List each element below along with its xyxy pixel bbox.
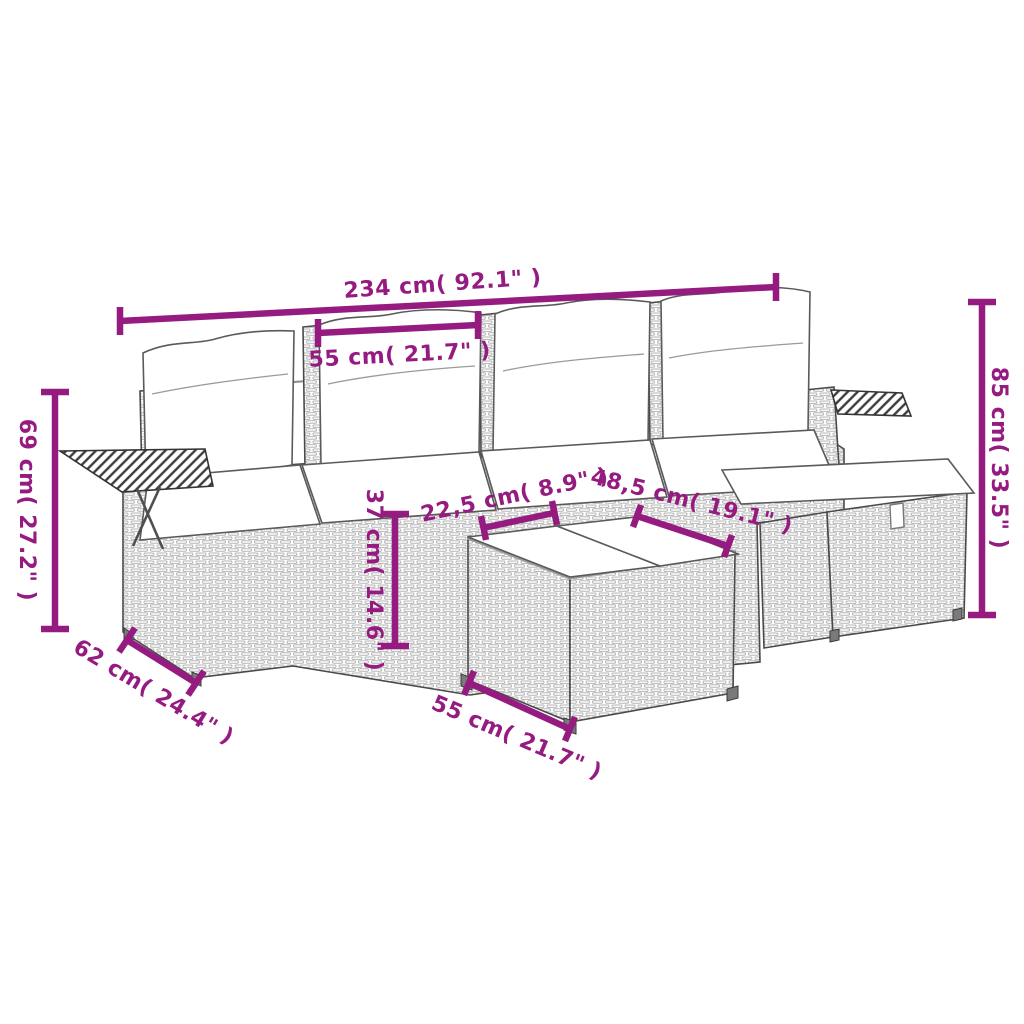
ottoman-latch xyxy=(890,503,904,529)
ottoman-foot-left xyxy=(830,629,839,642)
dimension-diagram-page: 234 cm( 92.1" ) 55 cm( 21.7" ) 69 cm( 27… xyxy=(0,0,1024,1024)
furniture-illustration xyxy=(60,287,974,734)
table-foot-right xyxy=(727,686,738,701)
back-cushion-3 xyxy=(493,299,650,453)
dimension-label: 69 cm( 27.2" ) xyxy=(14,419,39,601)
ottoman-foot-right xyxy=(953,608,962,621)
right-folding-table xyxy=(831,390,911,416)
furniture-dimension-diagram: 234 cm( 92.1" ) 55 cm( 21.7" ) 69 cm( 27… xyxy=(0,0,1024,1024)
back-cushion-4 xyxy=(661,287,810,441)
dimension-overall-height: 85 cm( 33.5" ) xyxy=(968,302,1011,615)
dimension-label: 85 cm( 33.5" ) xyxy=(986,367,1011,549)
dimension-label: 37 cm( 14.6" ) xyxy=(361,489,386,671)
table-right-face xyxy=(570,552,735,722)
dimension-armrest-side-height: 69 cm( 27.2" ) xyxy=(14,392,69,629)
left-folding-table xyxy=(60,449,213,492)
